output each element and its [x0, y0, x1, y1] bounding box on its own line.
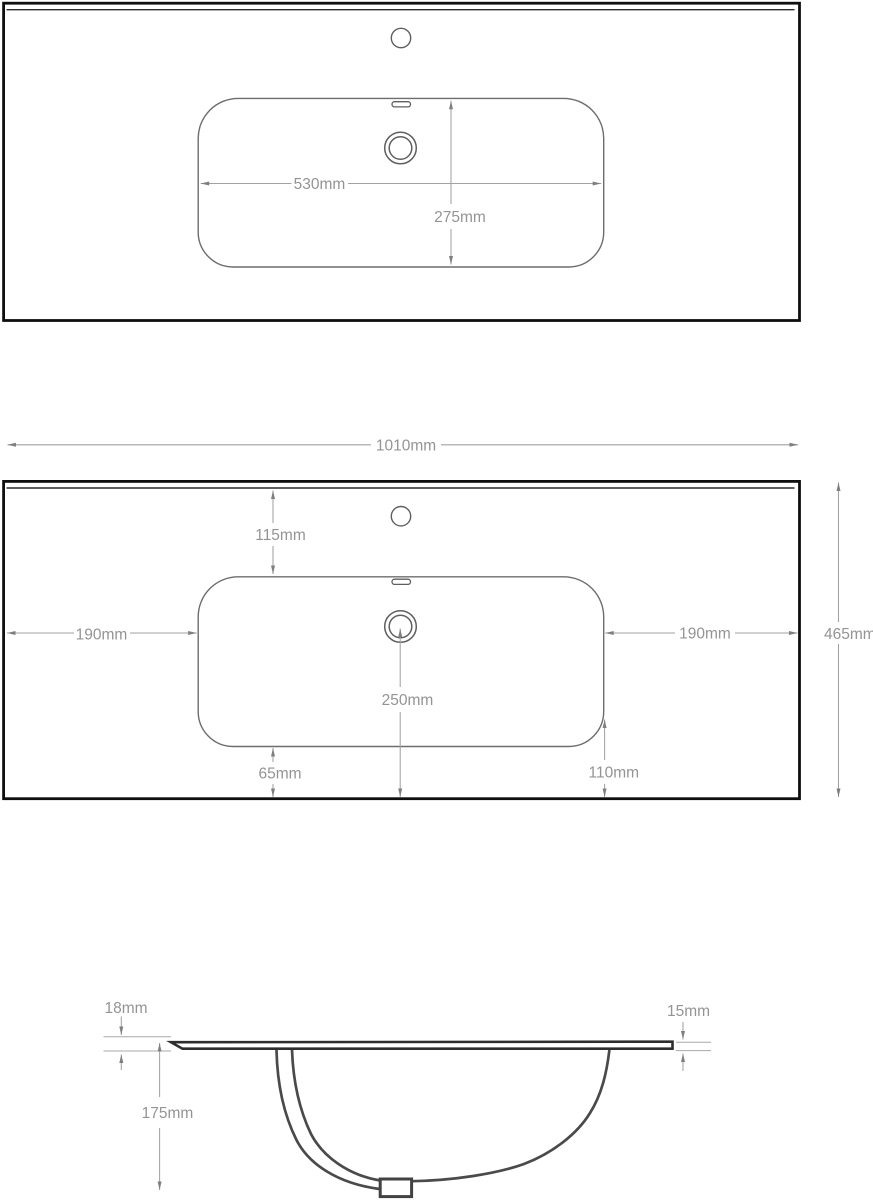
svg-text:275mm: 275mm	[434, 209, 486, 226]
svg-text:65mm: 65mm	[258, 766, 301, 783]
svg-text:530mm: 530mm	[294, 176, 346, 193]
svg-text:175mm: 175mm	[142, 1105, 194, 1122]
svg-text:1010mm: 1010mm	[376, 437, 436, 454]
svg-text:15mm: 15mm	[667, 1003, 710, 1020]
svg-text:465mm: 465mm	[824, 626, 873, 643]
svg-text:18mm: 18mm	[104, 1000, 147, 1017]
svg-text:190mm: 190mm	[76, 626, 128, 643]
svg-text:110mm: 110mm	[589, 765, 640, 782]
svg-text:190mm: 190mm	[679, 625, 731, 642]
svg-text:115mm: 115mm	[255, 527, 306, 544]
svg-text:250mm: 250mm	[382, 692, 434, 709]
